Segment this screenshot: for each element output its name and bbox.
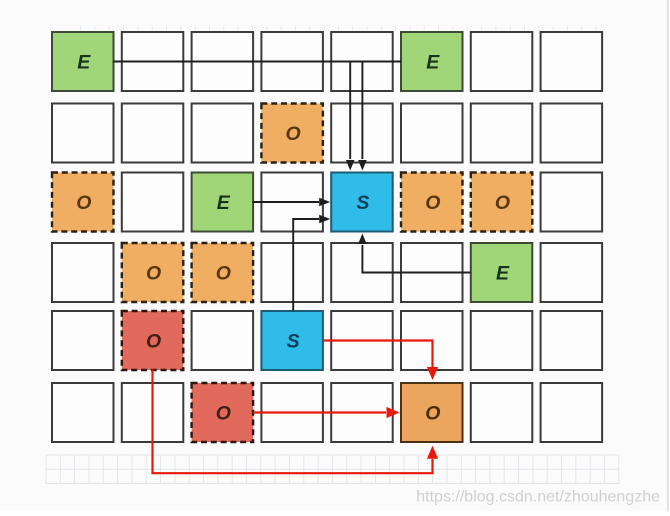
svg-text:E: E (426, 52, 440, 74)
svg-text:https://blog.csdn.net/zhouheng: https://blog.csdn.net/zhouhengzhe (416, 489, 660, 506)
svg-text:O: O (76, 192, 91, 214)
svg-text:E: E (77, 52, 91, 74)
svg-text:O: O (495, 192, 510, 214)
svg-text:O: O (216, 403, 231, 425)
svg-text:O: O (286, 123, 301, 145)
svg-text:S: S (287, 331, 300, 353)
svg-text:E: E (217, 192, 231, 214)
svg-text:E: E (496, 263, 510, 285)
svg-text:O: O (216, 263, 231, 285)
svg-text:O: O (425, 403, 440, 425)
svg-text:O: O (146, 331, 161, 353)
svg-text:S: S (356, 192, 369, 214)
svg-text:O: O (425, 192, 440, 214)
svg-text:O: O (146, 263, 161, 285)
